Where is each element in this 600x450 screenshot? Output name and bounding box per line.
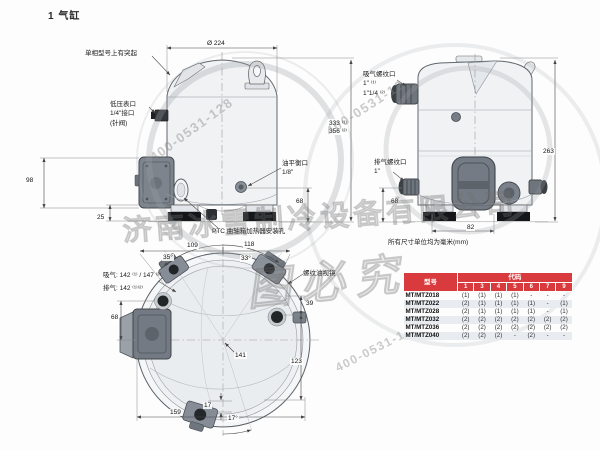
ptc-heater-hole [174, 179, 188, 201]
code-col: 3 [474, 283, 490, 292]
code-col: 4 [490, 283, 506, 292]
cell: (2) [556, 324, 572, 332]
model-name: MT/MTZ018 [404, 292, 458, 301]
muffler [452, 157, 495, 210]
model-code-table: 型号 代码 1 3 4 5 6 7 9 MT/MTZ018 (1) (1) (1… [403, 272, 573, 340]
label-protrusion: 单相型号上有突起 [85, 49, 137, 58]
discharge-port [399, 179, 420, 195]
label-oil-balance-port: 油平衡口 1/8" [282, 159, 308, 178]
cell: (2) [474, 316, 490, 324]
cell: (2) [474, 324, 490, 332]
cell: (2) [458, 316, 474, 324]
dim-141: 141 [234, 352, 247, 359]
label-discharge-height: 排气: 142 ⁽¹⁾⁽²⁾ [103, 284, 143, 293]
cell: - [539, 300, 555, 308]
table-header-code: 代码 [458, 273, 573, 283]
cell: (1) [474, 292, 490, 301]
motor-protector [498, 182, 520, 204]
cell: (2) [490, 332, 506, 340]
cell: (1) [507, 308, 523, 316]
cell: (1) [458, 292, 474, 301]
cell: (1) [507, 292, 523, 301]
cell: (2) [458, 324, 474, 332]
cell: (2) [490, 316, 506, 324]
cell: - [539, 308, 555, 316]
table-row: MT/MTZ032 (2) (2) (2) (2) (2) (2) (2) [404, 316, 573, 324]
dim-98: 98 [25, 177, 34, 184]
cell: (1) [474, 308, 490, 316]
side-view [391, 54, 548, 222]
label-ptc-heater: PTC 曲轴箱加热器安装孔 [212, 227, 285, 236]
model-name: MT/MTZ022 [404, 300, 458, 308]
angle-17: 17° [227, 415, 239, 422]
dim-82: 82 [466, 224, 475, 231]
cell: (2) [556, 316, 572, 324]
dim-68-right: 68 [390, 198, 399, 205]
cell: (2) [523, 316, 539, 324]
dim-68-top-view: 68 [110, 314, 119, 321]
cell: - [556, 332, 572, 340]
table-header-model: 型号 [404, 273, 458, 292]
cell: (2) [507, 324, 523, 332]
cell: - [539, 292, 555, 301]
dim-118: 118 [243, 241, 255, 248]
code-col: 1 [458, 283, 474, 292]
label-oil-sight-glass: 螺纹油视镜 [303, 269, 336, 278]
table-row: MT/MTZ028 (2) (1) (1) (1) (1) - (1) [404, 308, 573, 316]
dim-159: 159 [169, 409, 182, 416]
cell: (2) [490, 324, 506, 332]
technical-drawing [0, 0, 600, 450]
table-row: MT/MTZ018 (1) (1) (1) (1) - - - [404, 292, 573, 301]
dim-25: 25 [96, 214, 105, 221]
cell: - [523, 292, 539, 301]
foot-pad [243, 212, 276, 221]
cell: (2) [458, 332, 474, 340]
bolt [155, 293, 172, 310]
dim-height: 333 ⁽¹⁾ 356 ⁽²⁾ [328, 119, 348, 135]
cell: - [507, 332, 523, 340]
model-name: MT/MTZ036 [404, 324, 458, 332]
table-row: MT/MTZ022 (2) (1) (1) (1) (1) - (1) [404, 300, 573, 308]
table-row: MT/MTZ040 (2) (2) (2) - (2) - - [404, 332, 573, 340]
label-suction-height: 吸气: 142 ⁽¹⁾ / 147 ⁽²⁾ [103, 271, 161, 280]
cell: (2) [539, 316, 555, 324]
label-low-pressure-port: 低压表口 1/4"接口 (针阀) [110, 100, 136, 128]
angle-33: 33° [240, 255, 252, 262]
dim-39: 39 [305, 300, 314, 307]
model-name: MT/MTZ040 [404, 332, 458, 340]
label-suction-port: 吸气螺纹口 1" ⁽¹⁾ 1"1/4 ⁽²⁾ [363, 70, 396, 98]
dim-123: 123 [290, 358, 303, 365]
cell: (1) [523, 308, 539, 316]
dim-diameter: Ø 224 [206, 40, 226, 47]
cell: (1) [490, 308, 506, 316]
cell: (2) [539, 324, 555, 332]
cell: (2) [458, 308, 474, 316]
cell: (2) [474, 332, 490, 340]
angle-35: 35° [162, 254, 174, 261]
cell: (1) [556, 308, 572, 316]
code-col: 7 [539, 283, 555, 292]
cell: (2) [523, 324, 539, 332]
cell: - [539, 332, 555, 340]
code-col: 5 [507, 283, 523, 292]
page: 1 气缸 Ø 224 单相型号上有突起 低压表口 1/4"接口 (针阀) 333… [0, 0, 600, 450]
table-row: MT/MTZ036 (2) (2) (2) (2) (2) (2) (2) [404, 324, 573, 332]
cell: (1) [490, 300, 506, 308]
model-name: MT/MTZ028 [404, 308, 458, 316]
oil-balance-plug [236, 182, 247, 193]
cell: (2) [458, 300, 474, 308]
model-name: MT/MTZ032 [404, 316, 458, 324]
label-discharge-port: 排气螺纹口 1" [374, 158, 407, 177]
cell: (1) [490, 292, 506, 301]
page-title: 1 气缸 [48, 7, 80, 22]
cell: - [556, 292, 572, 301]
dim-263: 263 [542, 148, 555, 155]
code-col: 6 [523, 283, 539, 292]
code-col: 9 [556, 283, 572, 292]
dim-17: 17 [203, 402, 212, 409]
cell: (1) [523, 300, 539, 308]
top-terminal-box [120, 309, 171, 359]
cell: (1) [474, 300, 490, 308]
dim-109: 109 [186, 242, 199, 249]
cell: (2) [507, 316, 523, 324]
cell: (2) [523, 332, 539, 340]
cell: (1) [556, 300, 572, 308]
cell: (1) [507, 300, 523, 308]
units-note: 所有尺寸单位均为毫米(mm) [388, 236, 468, 246]
dim-68-left: 68 [295, 198, 304, 205]
